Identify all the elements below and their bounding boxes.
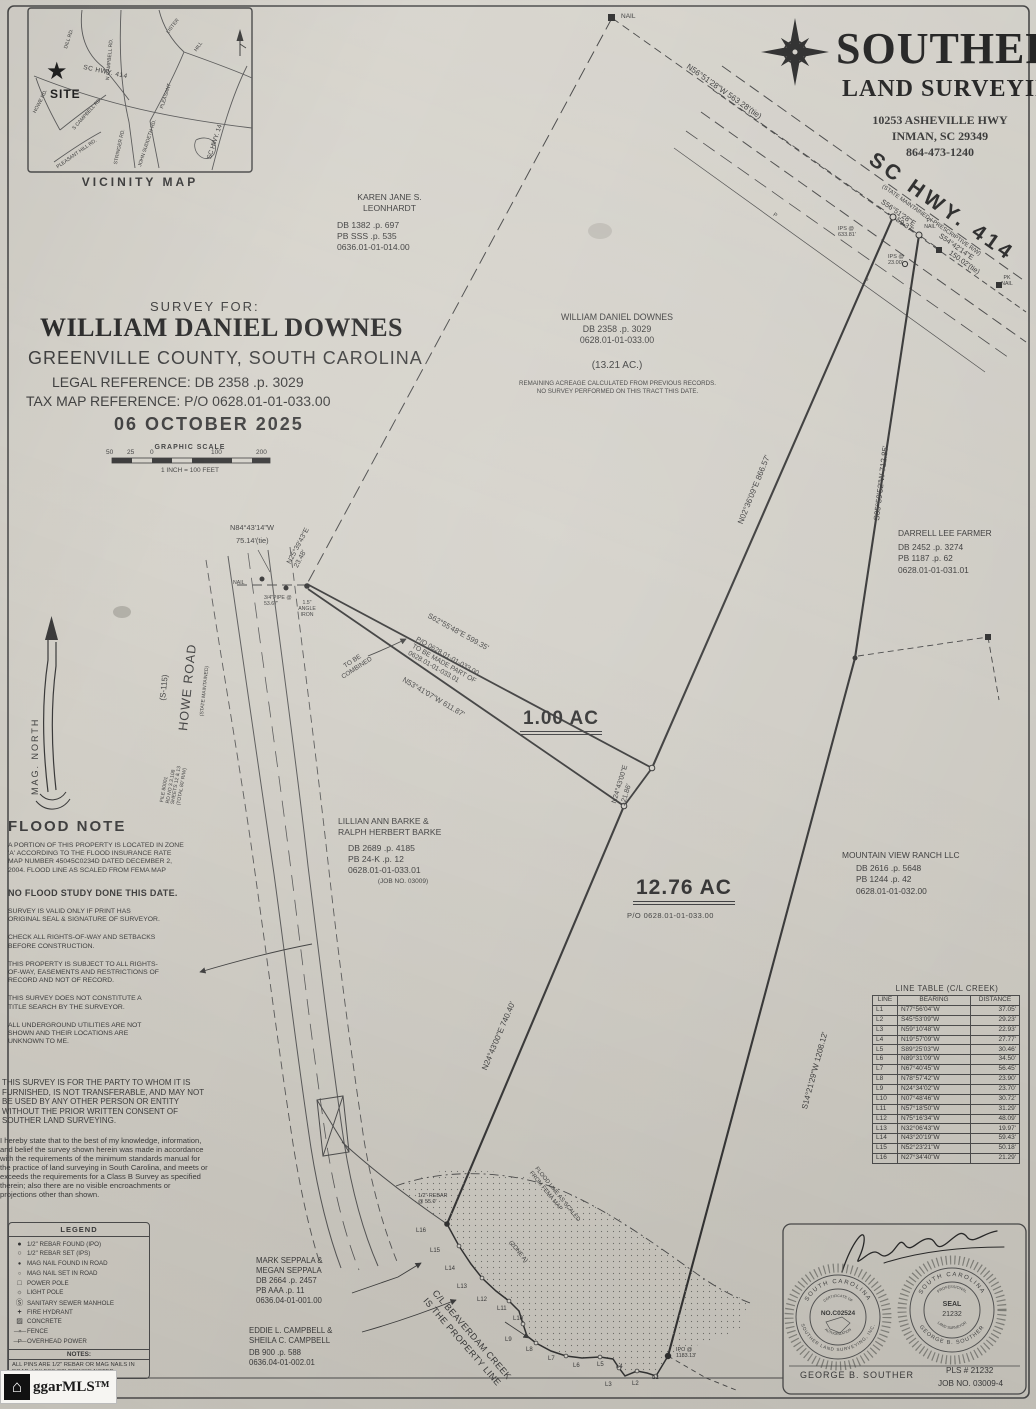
svg-text:LAND SURVEYOR: LAND SURVEYOR xyxy=(937,1321,968,1331)
line-id: L5 xyxy=(873,1045,898,1055)
legend-symbol-icon xyxy=(12,1317,27,1326)
legend-item: MAG NAIL FOUND IN ROAD xyxy=(12,1259,147,1269)
tract-2-area: 12.76 AC xyxy=(633,876,735,905)
county-state: GREENVILLE COUNTY, SOUTH CAROLINA xyxy=(28,348,423,369)
legend-symbol-icon xyxy=(12,1259,27,1269)
line-table-header: LINE xyxy=(873,996,898,1006)
creek-line-label: L12 xyxy=(477,1297,487,1304)
line-bearing: N67°40'45"W xyxy=(898,1065,971,1075)
line-id: L4 xyxy=(873,1035,898,1045)
line-table-header: DISTANCE xyxy=(971,996,1020,1006)
line-bearing: N57°18'50"W xyxy=(898,1104,971,1114)
pls-seal-word: SEAL xyxy=(943,1301,962,1308)
pls-seal-professional: PROFESSIONAL xyxy=(936,1285,967,1294)
line-distance: 23.90' xyxy=(971,1075,1020,1085)
line-id: L12 xyxy=(873,1114,898,1124)
line-id: L6 xyxy=(873,1055,898,1065)
firm-city: INMAN, SC 29349 xyxy=(850,130,1030,144)
line-distance: 56.45' xyxy=(971,1065,1020,1075)
creek-line-label: L14 xyxy=(445,1266,455,1273)
line-table-row: L7 N67°40'45"W 56.45' xyxy=(873,1065,1020,1075)
angle-iron-label: 1.5" ANGLE IRON xyxy=(294,601,320,619)
legend-item: CONCRETE xyxy=(12,1317,147,1326)
survey-date: 06 OCTOBER 2025 xyxy=(114,414,304,435)
creek-line-label: L4 xyxy=(616,1364,623,1371)
pls-seal: SOUTH CAROLINA GEORGE B. SOUTHER PROFESS… xyxy=(902,1260,1002,1360)
line-distance: 37.05' xyxy=(971,1005,1020,1015)
line-distance: 19.97' xyxy=(971,1124,1020,1134)
line-bearing: N52°23'21"W xyxy=(898,1144,971,1154)
house-icon: ⌂ xyxy=(4,1374,30,1400)
line-table-row: L15 N52°23'21"W 50.18' xyxy=(873,1144,1020,1154)
general-note: SURVEY IS VALID ONLY IF PRINT HAS ORIGIN… xyxy=(8,908,160,924)
legend-items: 1/2" REBAR FOUND (IPO) 1/2" REBAR SET (I… xyxy=(9,1237,149,1349)
line-bearing: N89°31'09"W xyxy=(898,1055,971,1065)
legend-symbol-icon xyxy=(12,1249,27,1258)
creek-line-label: L16 xyxy=(416,1228,426,1235)
site-star-icon: ★ xyxy=(46,58,68,86)
mls-watermark-text: ggarMLS™ xyxy=(33,1379,110,1396)
line-id: L15 xyxy=(873,1144,898,1154)
line-bearing: N27°34'40"W xyxy=(898,1154,971,1164)
general-note: CHECK ALL RIGHTS-OF-WAY AND SETBACKS BEF… xyxy=(8,934,160,950)
creek-line-label: L13 xyxy=(457,1284,467,1291)
flood-note-body: A PORTION OF THIS PROPERTY IS LOCATED IN… xyxy=(8,842,186,875)
nail-label: NAIL xyxy=(621,13,635,20)
line-distance: 59.43' xyxy=(971,1134,1020,1144)
line-table-row: L16 N27°34'40"W 21.29' xyxy=(873,1154,1020,1164)
legend-symbol-icon xyxy=(12,1240,27,1249)
graphic-scale-bar xyxy=(112,458,270,463)
line-distance: 34.50' xyxy=(971,1055,1020,1065)
legend-item: OVERHEAD POWER xyxy=(12,1337,147,1347)
downes-remainder-note: REMAINING ACREAGE CALCULATED FROM PREVIO… xyxy=(500,380,735,395)
legend-symbol-icon xyxy=(12,1337,27,1347)
owner-block-leonhardt: KAREN JANE S. LEONHARDT DB 1382 .p. 697 … xyxy=(337,192,442,253)
ipo-marker xyxy=(665,1353,671,1359)
concrete-crossing xyxy=(317,1096,349,1156)
line-table-row: L2 S45°53'09"W 29.23' xyxy=(873,1015,1020,1025)
auth-seal-authorization: AUTHORIZATION xyxy=(824,1327,852,1336)
scale-note: 1 INCH = 100 FEET xyxy=(130,467,250,474)
firm-tagline: LAND SURVEYING xyxy=(842,76,1036,104)
line-distance: 21.29' xyxy=(971,1154,1020,1164)
client-name: WILLIAM DANIEL DOWNES xyxy=(40,313,403,343)
svg-text:AUTHORIZATION: AUTHORIZATION xyxy=(824,1327,852,1336)
surveyor-name: GEORGE B. SOUTHER xyxy=(800,1370,914,1380)
mag-nail-marker xyxy=(260,577,265,582)
surveyor-signature xyxy=(842,1231,1004,1272)
line-table-row: L1 N77°56'04"W 37.05' xyxy=(873,1005,1020,1015)
line-table-row: L6 N89°31'09"W 34.50' xyxy=(873,1055,1020,1065)
line-bearing: N43°20'19"W xyxy=(898,1134,971,1144)
pls-seal-number: 21232 xyxy=(942,1311,962,1318)
ips-marker xyxy=(916,232,922,238)
vicinity-north-arrow-icon xyxy=(237,29,247,56)
pls-seal-land-surveyor: LAND SURVEYOR xyxy=(937,1321,968,1331)
scale-tick: 200 xyxy=(256,449,267,456)
line-id: L8 xyxy=(873,1075,898,1085)
general-note: THIS PROPERTY IS SUBJECT TO ALL RIGHTS-O… xyxy=(8,961,160,986)
line-distance: 27.77' xyxy=(971,1035,1020,1045)
line-bearing: S89°25'03"W xyxy=(898,1045,971,1055)
legend-item: SANITARY SEWER MANHOLE xyxy=(12,1298,147,1308)
general-note: THIS SURVEY DOES NOT CONSTITUTE A TITLE … xyxy=(8,995,160,1011)
firm-address: 10253 ASHEVILLE HWY xyxy=(850,114,1030,128)
pk-nail-label: PK NAIL xyxy=(999,276,1015,288)
creek-line-label: L11 xyxy=(497,1306,507,1313)
creek-line-label: L1 xyxy=(652,1375,659,1382)
tie-nw-bearing: N84°43'14"W xyxy=(230,524,274,533)
scale-tick: 100 xyxy=(211,449,222,456)
job-number: JOB NO. 03009-4 xyxy=(938,1379,1003,1388)
legend-box: LEGEND 1/2" REBAR FOUND (IPO) 1/2" REBAR… xyxy=(8,1222,150,1379)
mag-north-label: MAG. NORTH xyxy=(30,718,40,795)
line-distance: 22.93' xyxy=(971,1025,1020,1035)
line-table-row: L9 N24°34'02"W 23.70' xyxy=(873,1084,1020,1094)
line-table-section: LINE TABLE (C/L CREEK) LINE BEARING DIST… xyxy=(872,984,1022,1164)
nail-marker xyxy=(608,14,615,21)
creek-line-label: L3 xyxy=(605,1382,612,1389)
owner-block-campbell: EDDIE L. CAMPBELL & SHEILA C. CAMPBELL D… xyxy=(249,1326,332,1368)
legend-item: 1/2" REBAR FOUND (IPO) xyxy=(12,1240,147,1249)
overhead-power-line xyxy=(674,148,985,372)
auth-seal-number: NO.C02524 xyxy=(821,1310,856,1317)
line-bearing: N32°06'43"W xyxy=(898,1124,971,1134)
tie-nw-distance: 75.14'(tie) xyxy=(236,537,269,546)
line-id: L3 xyxy=(873,1025,898,1035)
nail-road-label: NAIL xyxy=(233,581,245,587)
downes-remainder-area: (13.21 AC.) xyxy=(532,360,702,372)
certification-statement: I hereby state that to the best of my kn… xyxy=(0,1136,208,1199)
pk-nail-label: PK NAIL xyxy=(922,219,938,231)
tax-map-reference: TAX MAP REFERENCE: P/O 0628.01-01-033.00 xyxy=(26,393,331,409)
ips-label-a: IPS @ 633.81' xyxy=(838,226,868,239)
legend-symbol-icon xyxy=(12,1279,27,1288)
owner-block-barke: LILLIAN ANN BARKE & RALPH HERBERT BARKE … xyxy=(338,816,468,887)
legend-symbol-icon xyxy=(12,1308,27,1317)
line-bearing: S45°53'09"W xyxy=(898,1015,971,1025)
legend-notes-title: NOTES: xyxy=(9,1349,149,1360)
mls-watermark: ⌂ ggarMLS™ xyxy=(0,1370,117,1404)
owner-block-farmer: DARRELL LEE FARMER DB 2452 .p. 3274 PB 1… xyxy=(898,528,992,576)
pipe-marker xyxy=(284,586,289,591)
line-table-row: L5 S89°25'03"W 30.46' xyxy=(873,1045,1020,1055)
line-id: L2 xyxy=(873,1015,898,1025)
rebar-label: 1/2" REBAR @ 55.0' xyxy=(418,1193,447,1205)
creek-line-label: L8 xyxy=(526,1347,533,1354)
svg-text:PROFESSIONAL: PROFESSIONAL xyxy=(936,1285,967,1294)
ipo-label: IPO @ 1183.13' xyxy=(676,1347,696,1359)
legend-item: FENCE xyxy=(12,1327,147,1337)
line-table-row: L8 N78°57'42"W 23.90' xyxy=(873,1075,1020,1085)
line-id: L16 xyxy=(873,1154,898,1164)
line-id: L9 xyxy=(873,1084,898,1094)
line-bearing: N07°48'46"W xyxy=(898,1094,971,1104)
scale-tick: 25 xyxy=(127,449,134,456)
line-table-row: L13 N32°06'43"W 19.97' xyxy=(873,1124,1020,1134)
creek-line-label: L7 xyxy=(548,1356,555,1363)
line-bearing: N19°57'09"W xyxy=(898,1035,971,1045)
owner-block-seppala: MARK SEPPALA & MEGAN SEPPALA DB 2664 .p.… xyxy=(256,1256,323,1306)
transfer-note: THIS SURVEY IS FOR THE PARTY TO WHOM IT … xyxy=(2,1078,210,1126)
angle-iron-marker xyxy=(304,583,310,589)
legend-title: LEGEND xyxy=(9,1223,149,1237)
mag-north-arrow-icon xyxy=(36,616,70,809)
line-table-row: L12 N75°16'34"W 48.09' xyxy=(873,1114,1020,1124)
line-distance: 31.29' xyxy=(971,1104,1020,1114)
line-id: L14 xyxy=(873,1134,898,1144)
line-table-row: L3 N59°10'48"W 22.93' xyxy=(873,1025,1020,1035)
line-table-header: BEARING xyxy=(898,996,971,1006)
pipe-label: 3/4"PIPE @ 53.67' xyxy=(264,596,298,608)
line-table: LINE BEARING DISTANCE L1 N77°56'04"W 37.… xyxy=(872,995,1020,1164)
graphic-scale-title: GRAPHIC SCALE xyxy=(140,444,240,452)
firm-name: SOUTHER xyxy=(836,24,1036,75)
general-notes: SURVEY IS VALID ONLY IF PRINT HAS ORIGIN… xyxy=(8,908,160,1056)
flood-note-title: FLOOD NOTE xyxy=(8,818,126,835)
line-table-row: L14 N43°20'19"W 59.43' xyxy=(873,1134,1020,1144)
line-table-row: L4 N19°57'09"W 27.77' xyxy=(873,1035,1020,1045)
legend-item: 1/2" REBAR SET (IPS) xyxy=(12,1249,147,1258)
legend-item: LIGHT POLE xyxy=(12,1288,147,1297)
vicinity-map-caption: VICINITY MAP xyxy=(28,176,252,190)
owner-block-mountain-view: MOUNTAIN VIEW RANCH LLC DB 2616 .p. 5648… xyxy=(842,850,960,897)
legend-item: FIRE HYDRANT xyxy=(12,1308,147,1317)
site-label: SITE xyxy=(50,88,81,102)
rebar-marker xyxy=(444,1221,450,1227)
line-distance: 30.46' xyxy=(971,1045,1020,1055)
line-distance: 29.23' xyxy=(971,1015,1020,1025)
ips-label-b: IPS @ 23.00' xyxy=(888,254,914,267)
tract-1-area: 1.00 AC xyxy=(520,708,602,735)
creek-line-label: L6 xyxy=(573,1363,580,1370)
tract-2-parcel: P/O 0628.01-01-033.00 xyxy=(627,912,714,921)
line-table-row: L10 N07°48'46"W 30.72' xyxy=(873,1094,1020,1104)
line-table-title: LINE TABLE (C/L CREEK) xyxy=(872,984,1022,993)
legend-item: MAG NAIL SET IN ROAD xyxy=(12,1269,147,1279)
legend-item: POWER POLE xyxy=(12,1279,147,1288)
pk-nail-marker xyxy=(936,247,942,253)
general-note: ALL UNDERGROUND UTILITIES ARE NOT SHOWN … xyxy=(8,1022,160,1047)
svg-text:CERTIFICATE OF: CERTIFICATE OF xyxy=(823,1294,854,1303)
legend-symbol-icon xyxy=(12,1298,27,1308)
line-distance: 48.09' xyxy=(971,1114,1020,1124)
line-id: L7 xyxy=(873,1065,898,1075)
line-bearing: N78°57'42"W xyxy=(898,1075,971,1085)
line-distance: 50.18' xyxy=(971,1144,1020,1154)
line-distance: 30.72' xyxy=(971,1094,1020,1104)
legend-symbol-icon xyxy=(12,1288,27,1297)
line-bearing: N77°56'04"W xyxy=(898,1005,971,1015)
pls-number: PLS # 21232 xyxy=(946,1366,993,1375)
line-distance: 23.70' xyxy=(971,1084,1020,1094)
flood-note-emphasis: NO FLOOD STUDY DONE THIS DATE. xyxy=(8,888,178,898)
scale-tick: 50 xyxy=(106,449,113,456)
owner-block-downes: WILLIAM DANIEL DOWNES DB 2358 .p. 3029 0… xyxy=(532,312,702,347)
scale-tick: 0 xyxy=(150,449,154,456)
creek-line-label: L9 xyxy=(505,1337,512,1344)
line-id: L1 xyxy=(873,1005,898,1015)
line-table-row: L11 N57°18'50"W 31.29' xyxy=(873,1104,1020,1114)
legend-symbol-icon xyxy=(12,1327,27,1337)
creek-line-label: L10 xyxy=(513,1316,523,1323)
line-bearing: N59°10'48"W xyxy=(898,1025,971,1035)
line-bearing: N24°34'02"W xyxy=(898,1084,971,1094)
legend-symbol-icon xyxy=(12,1269,27,1279)
line-id: L10 xyxy=(873,1094,898,1104)
line-bearing: N75°16'34"W xyxy=(898,1114,971,1124)
line-id: L11 xyxy=(873,1104,898,1114)
legal-reference: LEGAL REFERENCE: DB 2358 .p. 3029 xyxy=(52,374,304,390)
creek-line-label: L2 xyxy=(632,1381,639,1388)
compass-rose-icon xyxy=(761,18,829,86)
creek-line-label: L15 xyxy=(430,1248,440,1255)
auth-seal-cert: CERTIFICATE OF xyxy=(823,1294,854,1303)
line-id: L13 xyxy=(873,1124,898,1134)
creek-line-label: L5 xyxy=(597,1362,604,1369)
authorization-seal: SOUTH CAROLINA SOUTHER LAND SURVEYING, I… xyxy=(789,1268,887,1366)
